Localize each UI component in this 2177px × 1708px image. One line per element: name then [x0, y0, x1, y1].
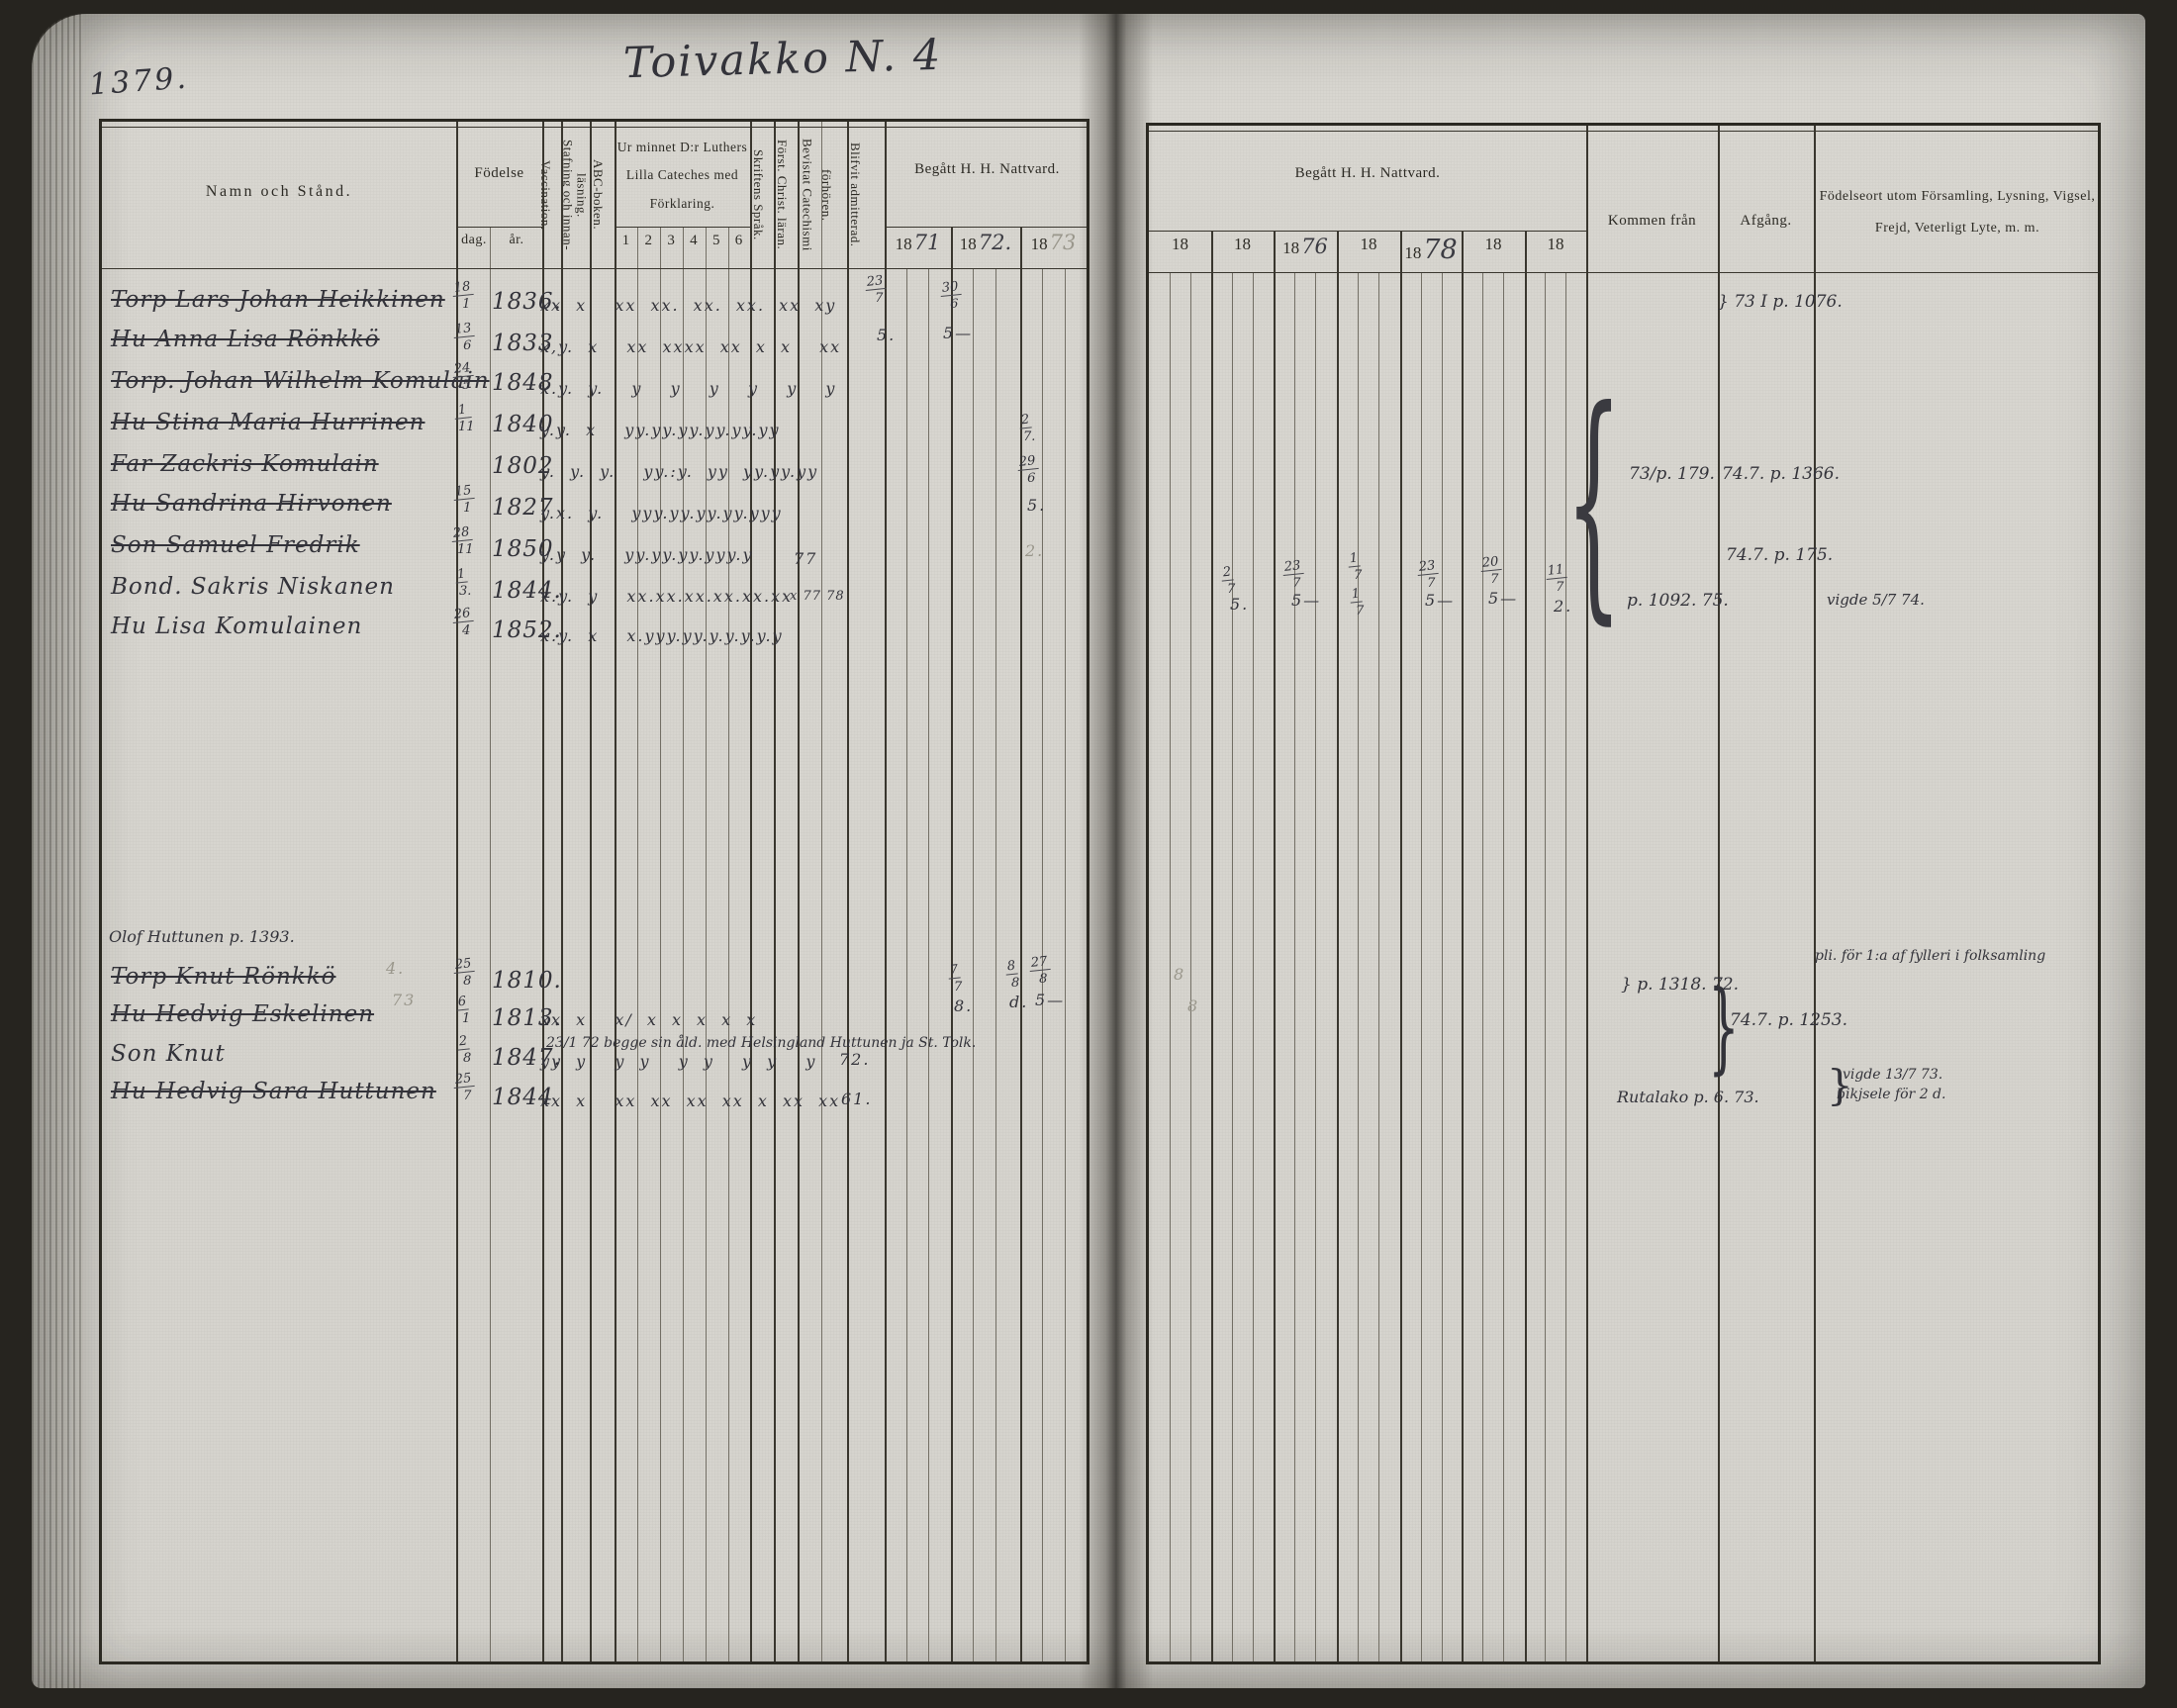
fraction-bottom: 8: [1009, 975, 1021, 990]
col-header-nattvard-left: Begått H. H. Nattvard.: [885, 161, 1089, 178]
assessment-mark: 8: [1187, 997, 1199, 1015]
table-rule: [1149, 131, 2098, 132]
date-mark: 17: [1350, 552, 1362, 582]
assessment-mark: 5.: [1027, 497, 1046, 515]
table-rule: [683, 227, 684, 1661]
table-rule: [1253, 272, 1254, 1661]
cateches-number-cell: 3: [660, 233, 683, 249]
date-mark: 264: [454, 608, 475, 637]
handwriting-entry: } 73 I p. 1076.: [1718, 293, 1843, 313]
assessment-mark: x 77 78: [790, 590, 845, 605]
handwriting-entry: Hu Hedvig Sara Huttunen: [111, 1079, 436, 1104]
fraction-bottom: 5: [456, 377, 477, 392]
handwriting-entry: 1810.: [492, 968, 562, 994]
date-mark: 27.: [1021, 414, 1033, 443]
table-rule: [706, 227, 707, 1661]
table-rule: [1442, 272, 1443, 1661]
fraction-bottom: 6: [457, 337, 478, 352]
col-header-namn-och-stand: Namn och Stånd.: [102, 183, 456, 201]
date-mark: 296: [1019, 455, 1040, 485]
col-header-cateches: Ur minnet D:r Luthers Lilla Cateches med…: [616, 134, 748, 218]
table-rule: [1462, 231, 1464, 1661]
fraction-top: 11: [1545, 563, 1566, 580]
fraction-bottom: 7: [457, 1088, 478, 1102]
assessment-mark: x.y. y. y y y y y y: [540, 380, 836, 398]
col-header-blifvit-admitterad: Blifvit admitterad.: [847, 126, 885, 264]
page-gutter-shadow: [1079, 14, 1154, 1688]
table-rule: [456, 122, 458, 1661]
page-title: Toivakko N. 4: [622, 32, 942, 89]
handwriting-entry: Son Samuel Fredrik: [111, 532, 360, 558]
table-rule: [637, 227, 638, 1661]
date-mark: 237: [867, 275, 888, 305]
assessment-mark: 8.: [954, 997, 973, 1015]
cateches-number-cell: 6: [727, 233, 750, 249]
fraction-top: 24: [451, 361, 473, 378]
fraction-top: 28: [450, 525, 472, 542]
handwriting-entry: Torp Knut Rönkkö: [111, 964, 336, 990]
fraction-bottom: 1: [457, 500, 478, 515]
fraction-top: 1: [1347, 551, 1361, 567]
table-rule: [1294, 272, 1295, 1661]
assessment-mark: 61.: [841, 1091, 872, 1108]
year-printed: 18: [1031, 235, 1048, 253]
handwriting-entry: Hu Sandrina Hirvonen: [111, 491, 392, 517]
col-header-cateches-line1: Ur minnet D:r Luthers: [616, 134, 748, 161]
fraction-bottom: 7: [869, 290, 890, 305]
table-rule: [102, 268, 1087, 269]
grouping-brace: }: [1708, 978, 1740, 1077]
date-mark: 257: [455, 1073, 476, 1102]
col-header-cateches-line2: Lilla Cateches med: [616, 161, 748, 189]
table-rule: [1482, 272, 1483, 1661]
table-rule: [660, 227, 661, 1661]
year-printed: 18: [1234, 235, 1251, 253]
fraction-top: 23: [1416, 559, 1438, 576]
table-rule: [456, 227, 542, 228]
fraction-top: 2: [1220, 565, 1234, 581]
fraction-bottom: 7: [1484, 571, 1505, 586]
table-rule: [885, 227, 1087, 228]
col-header-afgang: Afgång.: [1718, 213, 1814, 230]
assessment-mark: 2.: [1025, 542, 1044, 560]
date-mark: 13.: [457, 568, 469, 598]
assessment-mark: 5.: [1230, 596, 1249, 614]
table-rule: [728, 227, 729, 1661]
year-handwritten: 72.: [979, 231, 1011, 254]
table-rule: [1149, 272, 2098, 273]
assessment-mark: y.x. y. yyy.yy.yy.yy.yyy: [540, 505, 783, 522]
table-rule: [847, 122, 849, 1661]
fraction-top: 29: [1016, 454, 1038, 471]
assessment-mark: x.y. y xx.xx.xx.xx.xx.xx: [540, 588, 793, 606]
col-header-stafning: Stafning och innan-läsning.: [561, 126, 590, 264]
handwriting-entry: Torp Lars Johan Heikkinen: [111, 287, 445, 313]
col-header-fodelseort-line2: Frejd, Veterligt Lyte, m. m.: [1814, 213, 2101, 244]
year-header-cell: 18: [1337, 235, 1400, 272]
assessment-mark: xx x xx xx. xx. xx. xx xy: [540, 297, 836, 315]
fraction-top: 23: [1281, 559, 1303, 576]
assessment-mark: 4.: [386, 960, 405, 978]
fraction-top: 1: [1349, 587, 1363, 603]
year-handwritten: 78: [1423, 235, 1457, 265]
assessment-mark: 5—: [1035, 992, 1065, 1009]
col-header-skriftens-sprak: Skriftens Språk.: [750, 126, 774, 264]
date-mark: 136: [455, 323, 476, 352]
fraction-bottom: 6: [944, 296, 965, 311]
fraction-top: 25: [452, 957, 474, 974]
page-number: 1379.: [88, 62, 190, 103]
fraction-bottom: 7: [1286, 575, 1307, 590]
fraction-bottom: 7: [952, 979, 964, 994]
year-header-cell: 1871: [885, 231, 951, 268]
date-mark: 77: [950, 964, 962, 994]
year-header-cell: 18: [1211, 235, 1274, 272]
fraction-top: 7: [947, 963, 961, 979]
handwriting-entry: Hu Hedvig Eskelinen: [111, 1001, 374, 1027]
table-rule: [1586, 126, 1588, 1661]
handwriting-entry: Olof Huttunen p. 1393.: [109, 928, 295, 946]
handwriting-entry: Hu Lisa Komulainen: [111, 614, 362, 639]
year-printed: 18: [1548, 235, 1564, 253]
date-mark: 17: [1352, 588, 1364, 617]
assessment-mark: yy y y y y y y y y: [540, 1053, 816, 1071]
assessment-mark: xx x x/ x x x x x: [540, 1011, 757, 1029]
table-rule: [1358, 272, 1359, 1661]
date-mark: 111: [456, 404, 473, 433]
table-rule: [906, 268, 907, 1661]
date-mark: 2811: [453, 526, 474, 556]
fraction-bottom: 3.: [459, 583, 471, 598]
col-header-cateches-line3: Förklaring.: [616, 190, 748, 218]
col-header-kommen-fran: Kommen från: [1586, 213, 1718, 230]
year-header-cell: 1872.: [951, 231, 1020, 268]
col-header-nattvard-right: Begått H. H. Nattvard.: [1149, 165, 1586, 182]
handwriting-entry: vigde 13/7 73.: [1843, 1067, 1942, 1083]
year-printed: 18: [1282, 238, 1299, 257]
page-edge-stack: [32, 14, 83, 1688]
col-header-vaccination: Vaccination.: [537, 126, 561, 264]
fraction-top: 15: [452, 484, 474, 501]
fraction-top: 1: [453, 403, 471, 420]
table-rule: [1170, 272, 1171, 1661]
fraction-top: 23: [864, 274, 886, 291]
handwriting-entry: 74.7. p. 1253.: [1730, 1011, 1847, 1031]
fraction-top: 6: [455, 995, 469, 1010]
year-header-cell: 1873: [1020, 231, 1087, 268]
table-rule: [1211, 231, 1213, 1661]
fraction-top: 26: [451, 607, 473, 623]
handwriting-entry: vigde 5/7 74.: [1827, 592, 1925, 609]
assessment-mark: 5.: [877, 327, 896, 344]
year-header-cell: 18: [1462, 235, 1525, 272]
fraction-top: 27: [1028, 955, 1050, 972]
date-mark: 61: [458, 996, 470, 1025]
date-mark: 237: [1419, 560, 1440, 590]
table-rule: [102, 127, 1087, 128]
handwriting-entry: Far Zackris Komulain: [111, 451, 379, 477]
fraction-top: 18: [451, 280, 473, 297]
year-printed: 18: [896, 235, 912, 253]
table-rule: [1400, 231, 1402, 1661]
fraction-top: 30: [939, 280, 961, 297]
date-mark: 306: [942, 281, 963, 311]
date-mark: 207: [1482, 556, 1503, 586]
assessment-mark: 5—: [943, 325, 973, 342]
fraction-top: 25: [452, 1072, 474, 1089]
assessment-mark: y. y. y. yy.:y. yy yy.yy.yy: [540, 463, 818, 481]
fraction-bottom: 8: [457, 973, 478, 988]
handwriting-entry: 23/1 72 begge sin åld. med Helsingland H…: [546, 1035, 976, 1051]
assessment-mark: 77: [794, 550, 817, 568]
date-mark: 181: [454, 281, 475, 311]
table-rule: [1315, 272, 1316, 1661]
assessment-mark: xx x xx xx xx xx x xx xx: [540, 1092, 840, 1110]
table-rule: [1814, 126, 1816, 1661]
table-rule: [1149, 231, 1586, 232]
table-rule: [1545, 272, 1546, 1661]
assessment-mark: 5—: [1488, 590, 1518, 608]
handwriting-entry: Hu Anna Lisa Rönkkö: [111, 327, 380, 352]
fraction-top: 2: [456, 1034, 470, 1050]
handwriting-entry: 73/p. 179.: [1629, 465, 1715, 485]
table-rule: [1190, 272, 1191, 1661]
fraction-top: 8: [1004, 959, 1018, 975]
year-printed: 18: [1485, 235, 1502, 253]
table-rule: [1065, 268, 1066, 1661]
assessment-mark: 72.: [839, 1051, 870, 1069]
table-rule: [1421, 272, 1422, 1661]
fraction-bottom: 8: [1033, 971, 1054, 986]
year-header-cell: 18: [1525, 235, 1586, 272]
fraction-bottom: 7: [1225, 581, 1237, 596]
table-rule: [1232, 272, 1233, 1661]
fraction-bottom: 7: [1421, 575, 1442, 590]
cateches-number-cell: 5: [705, 233, 727, 249]
table-rule: [490, 227, 491, 1661]
assessment-mark: 8: [1174, 966, 1185, 984]
fraction-bottom: 7.: [1023, 428, 1035, 443]
table-rule: [1525, 231, 1527, 1661]
date-mark: 237: [1284, 560, 1305, 590]
assessment-mark: 5—: [1425, 592, 1455, 610]
handwriting-entry: 74.7. p. 175.: [1726, 546, 1833, 566]
table-rule: [951, 227, 953, 1661]
assessment-mark: d.: [1009, 994, 1028, 1011]
table-rule: [1378, 272, 1379, 1661]
col-header-bevistat-forhoren: Bevistat Catechismi förhören.: [798, 126, 847, 264]
year-handwritten: 76: [1301, 235, 1328, 258]
table-rule: [885, 122, 887, 1661]
fraction-bottom: 7: [1354, 603, 1366, 617]
handwriting-entry: Hu Stina Maria Hurrinen: [111, 410, 425, 435]
date-mark: 258: [455, 958, 476, 988]
right-page-table: Begått H. H. Nattvard. Kommen från Afgån…: [1146, 123, 2101, 1664]
book-scan: 1379. Toivakko N. 4 Namn och Stånd. Föde…: [0, 0, 2177, 1708]
year-printed: 18: [960, 235, 977, 253]
date-mark: 278: [1031, 956, 1052, 986]
year-printed: 18: [1404, 243, 1421, 262]
date-mark: 245: [454, 362, 475, 392]
year-handwritten: 71: [914, 231, 941, 254]
fraction-bottom: 4: [456, 622, 477, 637]
fraction-bottom: 11: [455, 541, 476, 556]
assessment-mark: x,y. x xx xxxx xx x x xx: [540, 338, 841, 356]
handwriting-entry: bikjsele för 2 d.: [1837, 1087, 1945, 1102]
col-header-fodelseort: Födelseort utom Församling, Lysning, Vig…: [1814, 181, 2101, 244]
fraction-top: 13: [452, 322, 474, 338]
fraction-top: 2: [1018, 413, 1032, 428]
assessment-mark: y.y. x yy.yy.yy.yy.yy.yy: [540, 422, 781, 439]
date-mark: 27: [1223, 566, 1235, 596]
handwriting-entry: 74.7. p. 1366.: [1722, 465, 1840, 485]
col-header-fodelseort-line1: Födelseort utom Församling, Lysning, Vig…: [1814, 181, 2101, 213]
table-rule: [995, 268, 996, 1661]
handwriting-entry: Bond. Sakris Niskanen: [111, 574, 395, 600]
year-handwritten: 73: [1050, 231, 1077, 254]
fraction-bottom: 1: [456, 296, 477, 311]
year-header-cell: 18: [1149, 235, 1211, 272]
table-rule: [928, 268, 929, 1661]
fraction-top: 1: [454, 567, 468, 583]
table-rule: [1274, 231, 1276, 1661]
handwriting-entry: pli. för 1:a af fylleri i folksamling: [1815, 948, 2045, 964]
year-printed: 18: [1361, 235, 1377, 253]
cateches-number-cell: 4: [682, 233, 705, 249]
grouping-brace: {: [1565, 378, 1622, 625]
assessment-mark: 73: [392, 992, 416, 1009]
handwriting-entry: p. 1092. 75.: [1627, 592, 1729, 612]
fraction-bottom: 6: [1021, 470, 1042, 485]
table-rule: [973, 268, 974, 1661]
fraction-bottom: 8: [461, 1050, 473, 1065]
col-header-dag: dag.: [456, 233, 492, 248]
handwriting-entry: Son Knut: [111, 1041, 226, 1067]
fraction-bottom: 1: [460, 1010, 472, 1025]
assessment-mark: x.y. x x.yyy.yy.y.y.y.y.y: [540, 627, 784, 645]
col-header-abc-boken: ABC-boken.: [590, 126, 615, 264]
fraction-bottom: 7: [1352, 567, 1364, 582]
table-rule: [1503, 272, 1504, 1661]
date-mark: 88: [1007, 960, 1019, 990]
year-header-cell: 1876: [1274, 235, 1337, 272]
col-header-fodelse: Födelse: [456, 165, 542, 182]
date-mark: 151: [455, 485, 476, 515]
table-rule: [1718, 126, 1720, 1661]
assessment-mark: y.y y. yy.yy.yy.yyy.y: [540, 546, 754, 564]
cateches-number-cell: 2: [637, 233, 660, 249]
handwriting-entry: Rutalako p. 6. 73.: [1617, 1089, 1759, 1106]
table-rule: [615, 227, 750, 228]
year-printed: 18: [1172, 235, 1188, 253]
date-mark: 28: [459, 1035, 471, 1065]
handwriting-entry: Torp. Johan Wilhelm Komulain: [111, 368, 490, 394]
assessment-mark: 5—: [1291, 592, 1321, 610]
fraction-bottom: 11: [458, 419, 475, 433]
table-rule: [1337, 231, 1339, 1661]
col-header-ar: år.: [492, 233, 541, 248]
cateches-number-cell: 1: [615, 233, 637, 249]
col-header-forst-christ-laran: Först. Christ. läran.: [774, 126, 798, 264]
year-header-cell: 1878: [1400, 235, 1462, 272]
fraction-top: 20: [1479, 555, 1501, 572]
